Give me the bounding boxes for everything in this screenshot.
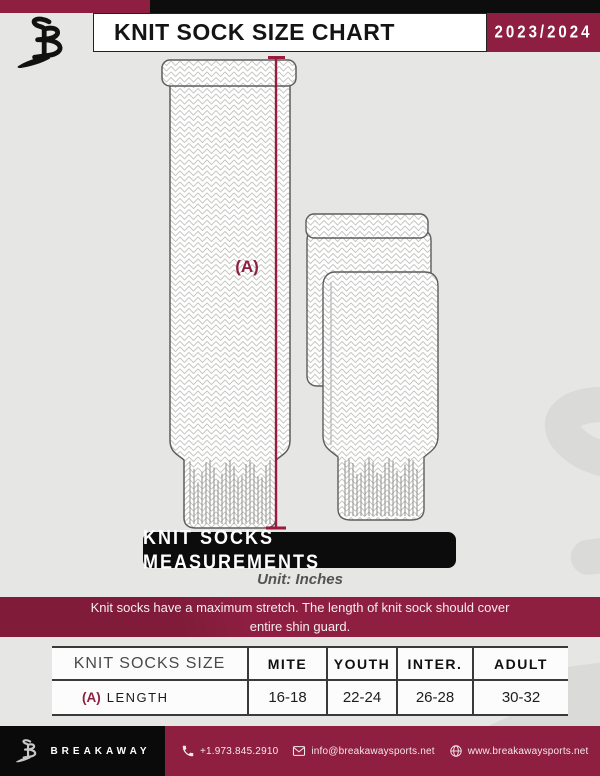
length-value-youth: 22-24 <box>326 681 396 714</box>
footer-brand: BREAKAWAY <box>0 726 165 776</box>
measurements-banner-label: KNIT SOCKS MEASUREMENTS <box>143 526 456 574</box>
size-table: KNIT SOCKS SIZE MITE YOUTH INTER. ADULT … <box>52 646 568 716</box>
measurement-label-a: (A) <box>235 257 259 276</box>
table-header-mite: MITE <box>247 648 326 681</box>
length-value-inter: 26-28 <box>396 681 472 714</box>
website-url: www.breakawaysports.net <box>468 746 589 757</box>
table-row-length-label: (A) LENGTH <box>52 681 247 714</box>
table-header-youth: YOUTH <box>326 648 396 681</box>
breakaway-logo-footer <box>14 738 41 765</box>
row-label-length: LENGTH <box>107 690 169 705</box>
envelope-icon <box>292 744 306 758</box>
phone-icon <box>181 744 195 758</box>
stretch-notice-line1: Knit socks have a maximum stretch. The l… <box>0 598 600 618</box>
sock-intermediate <box>323 272 438 520</box>
footer: BREAKAWAY +1.973.845.2910 info@breakaway… <box>0 726 600 776</box>
measurements-banner: KNIT SOCKS MEASUREMENTS <box>143 532 456 568</box>
stretch-notice-line2: entire shin guard. <box>0 617 600 637</box>
phone-contact: +1.973.845.2910 <box>181 744 278 758</box>
footer-contact: +1.973.845.2910 info@breakawaysports.net… <box>165 726 600 776</box>
table-header-adult: ADULT <box>472 648 568 681</box>
table-header-size: KNIT SOCKS SIZE <box>52 648 247 681</box>
length-value-adult: 30-32 <box>472 681 568 714</box>
email-contact[interactable]: info@breakawaysports.net <box>292 744 434 758</box>
website-contact[interactable]: www.breakawaysports.net <box>449 744 589 758</box>
phone-number: +1.973.845.2910 <box>200 746 278 757</box>
length-value-mite: 16-18 <box>247 681 326 714</box>
knit-sock-size-chart-page: KNIT SOCK SIZE CHART 2023/2024 <box>0 0 600 776</box>
table-header-inter: INTER. <box>396 648 472 681</box>
stretch-notice: Knit socks have a maximum stretch. The l… <box>0 597 600 637</box>
row-key-a: (A) <box>82 690 101 705</box>
email-address: info@breakawaysports.net <box>311 746 434 757</box>
unit-note: Unit: Inches <box>0 571 600 588</box>
brand-name: BREAKAWAY <box>50 746 150 757</box>
globe-icon <box>449 744 463 758</box>
